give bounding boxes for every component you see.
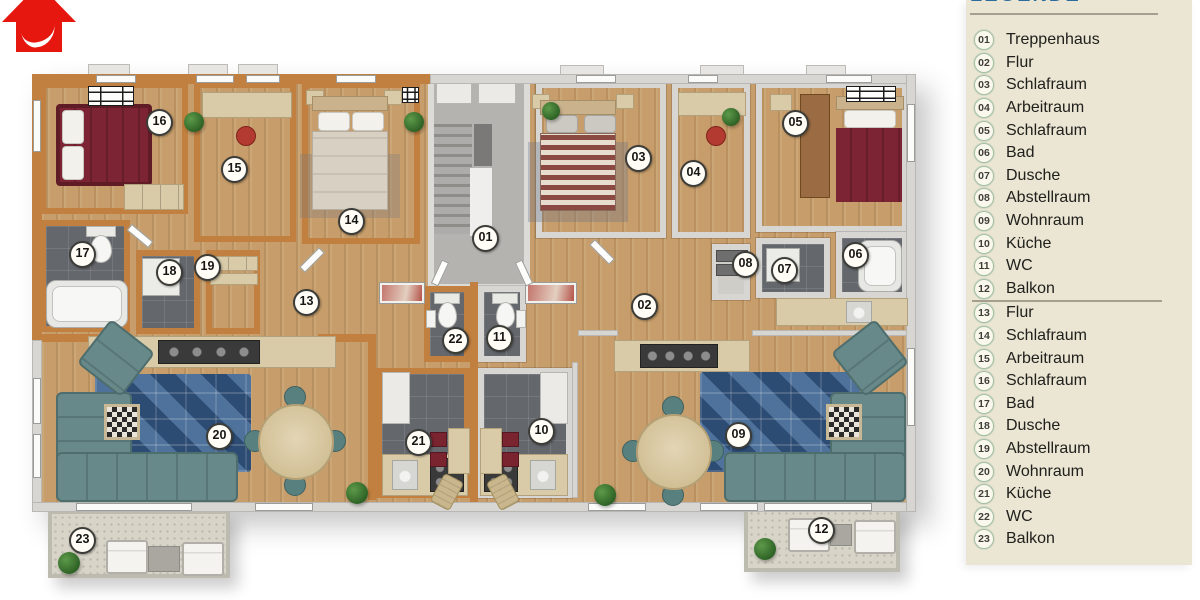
coffee-table [826,404,862,440]
room-number-badge: 08 [732,251,759,278]
balcony-door [764,503,872,511]
legend-number-badge: 01 [974,30,994,50]
room-number-badge: 04 [680,160,707,187]
legend-number-badge: 09 [974,211,994,231]
legend-item: 01Treppenhaus [974,29,1186,52]
window [588,503,646,511]
exterior-wall-left-lower [32,340,42,512]
legend-item: 07Dusche [974,165,1186,188]
pillow [844,110,896,128]
window [96,75,136,83]
window [576,75,616,83]
legend-number-badge: 20 [974,462,994,482]
window [688,75,718,83]
legend-item: 21Küche [974,483,1186,506]
balcony-mat [148,546,180,572]
plant [542,102,560,120]
room-number-badge: 23 [69,527,96,554]
fridge [540,372,568,424]
room-number-badge: 22 [442,327,469,354]
legend-label: Dusche [1006,167,1060,185]
sofa [724,452,906,502]
hall-wall [578,330,618,336]
legend-item: 16Schlafraum [974,370,1186,393]
legend-label: Arbeitraum [1006,350,1084,368]
legend-number-badge: 17 [974,394,994,414]
bathtub-inner [864,246,896,286]
kitchen-table [480,428,502,474]
room-number-badge: 03 [625,145,652,172]
chair [502,432,519,447]
room-number-badge: 12 [808,517,835,544]
legend-number-badge: 15 [974,349,994,369]
legend-number-badge: 14 [974,326,994,346]
lounger [182,542,224,576]
window [255,503,313,511]
wall-art [380,283,424,303]
legend-item: 05Schlafraum [974,119,1186,142]
bed-dark-red [836,128,902,202]
window-plan-symbol [402,87,419,103]
legend-label: Schlafraum [1006,327,1087,345]
legend-item: 06Bad [974,142,1186,165]
room-number-badge: 05 [782,110,809,137]
legend-label: Küche [1006,235,1051,253]
legend-label: Bad [1006,395,1034,413]
legend-number-badge: 04 [974,98,994,118]
plant [184,112,204,132]
room-number-badge: 17 [69,241,96,268]
window [33,100,41,152]
stair-landing-upper [474,124,492,166]
room-number-badge: 06 [842,242,869,269]
legend-label: Bad [1006,144,1034,162]
chair [430,432,447,447]
stair-entry-wall [478,82,516,104]
legend-label: Balkon [1006,530,1055,548]
legend-label: Flur [1006,54,1034,72]
kitchen-sink [846,301,872,323]
legend-label: Wohnraum [1006,212,1084,230]
pillow [584,115,616,133]
legend-item: 19Abstellraum [974,438,1186,461]
window [700,503,758,511]
stair-entry-wall [436,82,472,104]
window [246,75,280,83]
room-number-badge: 11 [486,325,513,352]
legend-item: 14Schlafraum [974,325,1186,348]
legend-label: Arbeitraum [1006,99,1084,117]
legend-label: Abstellraum [1006,440,1090,458]
legend-number-badge: 02 [974,53,994,73]
dining-table [636,414,712,490]
chair [502,452,519,467]
kitchen-counter [776,298,908,326]
kitchen-sink [392,460,418,490]
unit-divider-wall [470,282,478,510]
stairs [434,124,472,234]
legend-item: 12Balkon [974,278,1186,301]
pillow [62,146,84,180]
lounger [106,540,148,574]
kitchen-wall-right [572,362,578,498]
room-number-badge: 21 [405,429,432,456]
legend-number-badge: 16 [974,371,994,391]
room-number-badge: 02 [631,293,658,320]
bathtub-inner [52,286,122,322]
chair [430,452,447,467]
legend-item: 17Bad [974,393,1186,416]
legend-item: 11WC [974,255,1186,278]
sofa [56,452,238,502]
window [33,434,41,478]
pillow [62,110,84,144]
room-number-badge: 16 [146,109,173,136]
desk-chair [706,126,726,146]
desk [202,92,292,118]
plant [594,484,616,506]
fridge [382,372,410,424]
window [826,75,872,83]
legend-label: Küche [1006,485,1051,503]
legend-item: 03Schlafraum [974,74,1186,97]
window [907,348,915,426]
coffee-table [104,404,140,440]
legend-number-badge: 03 [974,75,994,95]
legend-item: 04Arbeitraum [974,97,1186,120]
legend-number-badge: 12 [974,279,994,299]
legend-item: 15Arbeitraum [974,347,1186,370]
dresser [124,184,184,210]
kitchen-sink [530,460,556,490]
room-number-badge: 10 [528,418,555,445]
legend-item: 08Abstellraum [974,187,1186,210]
legend-label: Schlafraum [1006,372,1087,390]
legend-item: 23Balkon [974,528,1186,551]
legend-label: Wohnraum [1006,463,1084,481]
room-number-badge: 07 [771,257,798,284]
legend-label: Abstellraum [1006,189,1090,207]
legend-panel: LEGENDE 01Treppenhaus02Flur03Schlafraum0… [966,0,1192,565]
legend-number-badge: 13 [974,303,994,323]
legend-label: Treppenhaus [1006,31,1100,49]
room-number-badge: 01 [472,225,499,252]
room-number-badge: 19 [194,254,221,281]
legend-number-badge: 06 [974,143,994,163]
legend-item: 13Flur [974,302,1186,325]
plant [58,552,80,574]
wall-art [526,283,576,303]
bed-headboard [312,96,388,111]
room-number-badge: 13 [293,289,320,316]
nightstand [770,94,792,111]
toilet [438,302,457,328]
window [336,75,376,83]
floorplan-page: 0102030405060708091011121314151617181920… [0,0,1200,600]
legend-item: 22WC [974,505,1186,528]
legend-item: 18Dusche [974,415,1186,438]
balcony-door [76,503,192,511]
wardrobe [800,94,830,198]
kitchen-wall [368,336,376,500]
legend-label: Dusche [1006,417,1060,435]
kitchen-table [448,428,470,474]
legend-number-badge: 11 [974,256,994,276]
legend-item: 02Flur [974,52,1186,75]
legend-number-badge: 10 [974,234,994,254]
room-number-badge: 14 [338,208,365,235]
legend-label: Schlafraum [1006,76,1087,94]
legend-label: WC [1006,508,1033,526]
legend-number-badge: 21 [974,484,994,504]
window-plan-symbol [88,86,134,106]
legend-number-badge: 07 [974,166,994,186]
lounger [854,520,896,554]
legend-number-badge: 05 [974,121,994,141]
legend-number-badge: 23 [974,529,994,549]
sink [516,310,526,328]
nightstand [616,94,634,109]
bed-blanket [312,131,388,210]
plant [754,538,776,560]
room-number-badge: 15 [221,156,248,183]
legend-item: 20Wohnraum [974,460,1186,483]
pillow [318,112,350,131]
legend-title-underline [970,13,1158,15]
plant [404,112,424,132]
legend-number-badge: 19 [974,439,994,459]
cooktop [158,340,260,364]
legend-label: Balkon [1006,280,1055,298]
room-number-badge: 20 [206,423,233,450]
cooktop [640,344,718,368]
dining-table [258,404,334,480]
pillow [352,112,384,131]
plant [722,108,740,126]
sink [426,310,436,328]
legend-number-badge: 18 [974,416,994,436]
window [196,75,234,83]
legend-item: 10Küche [974,232,1186,255]
legend-items: 01Treppenhaus02Flur03Schlafraum04Arbeitr… [974,29,1186,551]
legend-item: 09Wohnraum [974,210,1186,233]
bed-striped-blanket [540,133,616,211]
desk-chair [236,126,256,146]
window [907,104,915,162]
window-plan-symbol [846,86,896,102]
legend-label: WC [1006,257,1033,275]
plant [346,482,368,504]
legend-number-badge: 08 [974,188,994,208]
legend-label: Schlafraum [1006,122,1087,140]
legend-number-badge: 22 [974,507,994,527]
room-number-badge: 09 [725,422,752,449]
legend-title: LEGENDE [970,0,1081,7]
room-number-badge: 18 [156,259,183,286]
legend-label: Flur [1006,304,1034,322]
window [33,378,41,424]
